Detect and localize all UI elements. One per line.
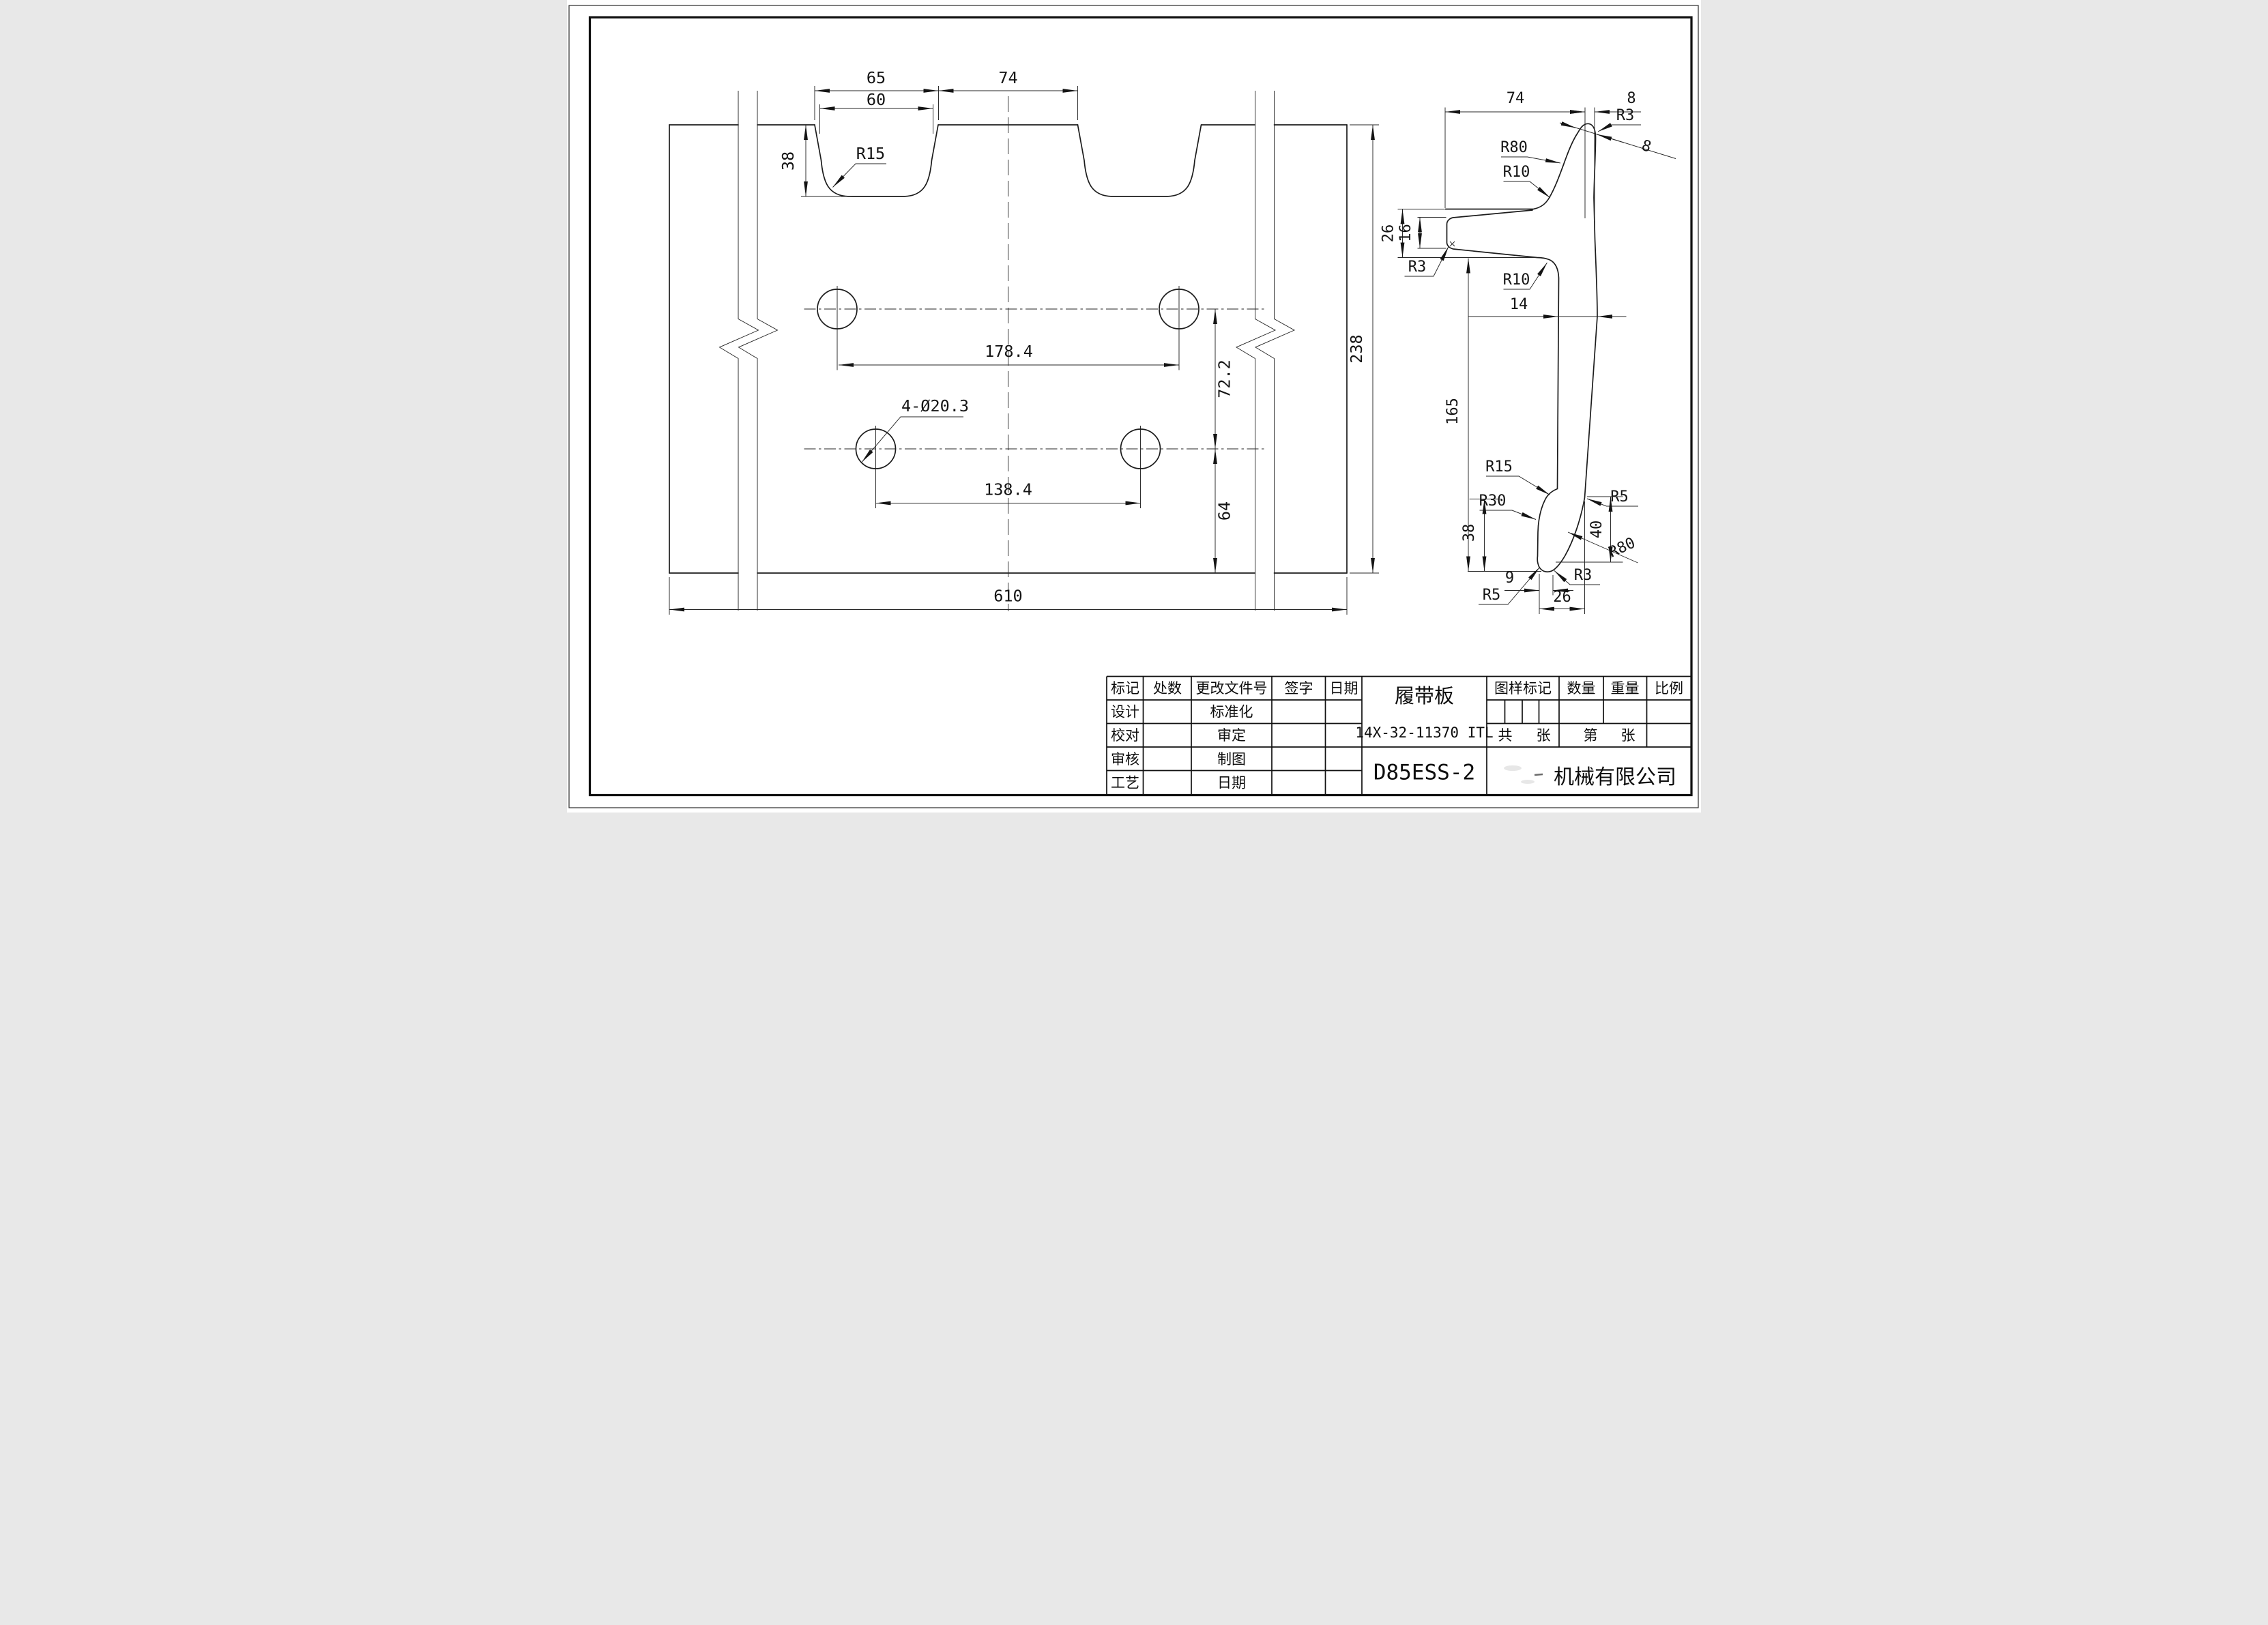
cell-approve: 审定 (1217, 727, 1246, 744)
dim-178-4: 178.4 (985, 342, 1033, 361)
header-date: 日期 (1330, 680, 1358, 697)
row-audit: 审核 (1111, 751, 1139, 767)
drawing-sheet: 65 74 60 38 R15 178.4 138.4 72.2 64 4-Ø2… (567, 0, 1701, 812)
label-r30-foot: R30 (1479, 493, 1507, 510)
header-change-doc: 更改文件号 (1196, 680, 1268, 697)
dim-138-4: 138.4 (984, 480, 1032, 499)
label-r3-foot: R3 (1574, 567, 1593, 584)
dim-26-foot: 26 (1553, 589, 1571, 606)
dim-610: 610 (993, 587, 1022, 606)
dim-74-section: 74 (1507, 90, 1525, 107)
dim-72-2: 72.2 (1215, 360, 1234, 398)
erased-dash (1535, 774, 1543, 775)
label-page: 第 (1584, 727, 1598, 744)
label-r80-top: R80 (1500, 139, 1528, 156)
label-r3-slot: R3 (1408, 259, 1427, 276)
header-mark: 标记 (1111, 680, 1139, 697)
row-design: 设计 (1111, 704, 1139, 720)
part-code: 14X-32-11370 ITL (1355, 724, 1493, 741)
cell-date: 日期 (1217, 775, 1246, 791)
dim-8-top: 8 (1627, 90, 1635, 107)
label-total-sheets: 张 (1537, 727, 1551, 744)
dim-74-main: 74 (998, 68, 1017, 87)
dim-26-top: 26 (1380, 224, 1397, 243)
dim-holes: 4-Ø20.3 (901, 396, 969, 415)
dim-65: 65 (867, 68, 886, 87)
label-total: 共 (1498, 727, 1513, 744)
dim-38-foot: 38 (1461, 524, 1478, 542)
part-name: 履带板 (1395, 685, 1454, 707)
header-quantity: 数量 (1567, 680, 1596, 697)
label-r5-right: R5 (1610, 488, 1629, 506)
dim-60: 60 (867, 90, 886, 109)
cad-drawing: 65 74 60 38 R15 178.4 138.4 72.2 64 4-Ø2… (567, 0, 1701, 812)
header-drawing-mark: 图样标记 (1494, 680, 1552, 697)
dim-165: 165 (1444, 398, 1462, 425)
dim-16: 16 (1397, 224, 1414, 242)
cell-standardize: 标准化 (1210, 704, 1253, 720)
label-r5-foot: R5 (1483, 587, 1501, 604)
row-process: 工艺 (1111, 775, 1139, 791)
row-check: 校对 (1111, 727, 1139, 744)
label-r10-top: R10 (1503, 164, 1530, 181)
model-number: D85ESS-2 (1373, 761, 1475, 785)
label-r15-foot: R15 (1485, 458, 1513, 475)
label-page-sheet: 张 (1621, 727, 1635, 744)
label-r15-main: R15 (856, 144, 885, 163)
dim-14: 14 (1510, 296, 1528, 313)
header-signature: 签字 (1285, 680, 1313, 697)
dim-64: 64 (1215, 501, 1234, 521)
header-scale: 比例 (1655, 680, 1683, 697)
label-r3-tip: R3 (1616, 107, 1635, 124)
label-r10-mid: R10 (1503, 272, 1530, 289)
header-weight: 重量 (1611, 680, 1640, 697)
company-name: 机械有限公司 (1554, 766, 1676, 789)
dim-9: 9 (1505, 570, 1514, 587)
erased-watermark (1504, 765, 1522, 771)
header-count: 处数 (1153, 680, 1182, 697)
dim-38-main: 38 (779, 151, 798, 171)
erased-watermark (1521, 780, 1535, 784)
cell-draft: 制图 (1217, 751, 1246, 767)
dim-40: 40 (1588, 521, 1605, 539)
dim-238: 238 (1347, 334, 1366, 363)
